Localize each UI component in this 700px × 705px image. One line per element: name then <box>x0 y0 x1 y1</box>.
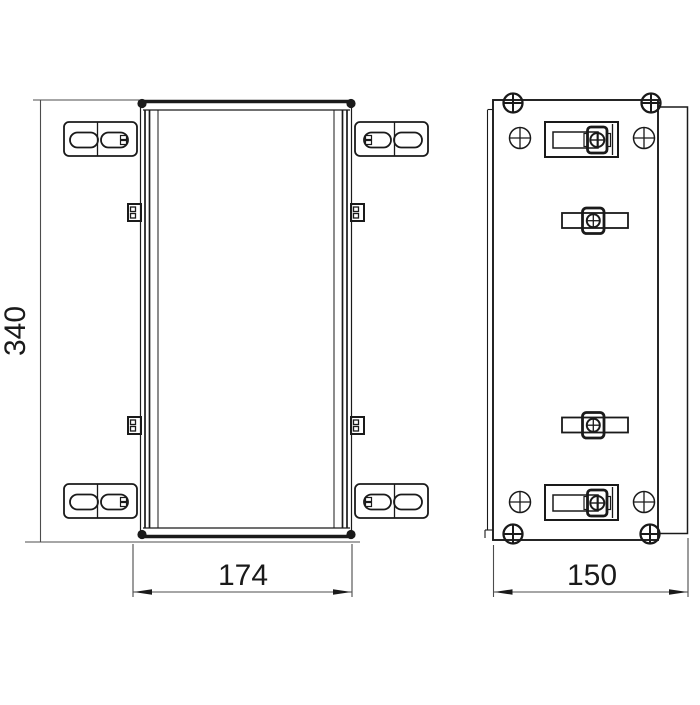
wall-bracket-bottom-right <box>355 484 428 518</box>
screw-hole-top-right <box>634 128 655 149</box>
edge-screw-bottom-left <box>504 525 523 544</box>
arrowhead-left <box>134 589 153 594</box>
frame-top-bar <box>137 99 355 110</box>
retainer-clip-left-lower <box>128 417 141 434</box>
screw-hole-bottom-left <box>510 492 531 513</box>
front-view: 340 <box>0 99 428 597</box>
top-bar-end-cap-left <box>137 99 146 108</box>
dimension-height-label: 340 <box>0 306 32 356</box>
clamp-bar-lower <box>562 413 628 439</box>
edge-screw-top-left <box>504 94 523 113</box>
wall-bracket-top-left <box>64 122 137 156</box>
slot-hole <box>394 495 422 510</box>
dimension-width-label: 174 <box>218 559 268 592</box>
frame-right-wall <box>334 104 352 536</box>
clamp-screw <box>587 214 600 227</box>
clamp-screw <box>587 419 600 432</box>
side-view: 150 <box>485 94 688 598</box>
dimension-width: 174 <box>133 544 352 597</box>
slot-hole <box>70 133 98 148</box>
wall-bracket-bottom-left <box>64 484 137 518</box>
retainer-clip-left-upper <box>128 204 141 221</box>
installation-frame-drawing: 340 <box>0 0 700 700</box>
arrowhead-left <box>494 589 513 594</box>
dimension-height: 340 <box>0 100 360 542</box>
arrowhead-right <box>333 589 352 594</box>
fastening-bracket-top <box>545 122 618 157</box>
side-left-fold <box>485 110 493 539</box>
dimension-depth: 150 <box>494 538 689 597</box>
frame-bottom-bar <box>137 528 355 539</box>
arrowhead-right <box>669 589 688 594</box>
screw-hole-top-left <box>510 128 531 149</box>
dimension-depth-label: 150 <box>567 559 617 592</box>
edge-screw-bottom-right <box>641 525 660 544</box>
screw-hole-bottom-right <box>634 492 655 513</box>
wall-bracket-top-right <box>355 122 428 156</box>
retainer-clip-right-upper <box>351 204 364 221</box>
side-right-flange <box>658 107 688 534</box>
edge-screw-top-right <box>642 94 661 113</box>
bracket-screw <box>590 496 604 510</box>
retainer-clip-right-lower <box>351 417 364 434</box>
slot-hole <box>70 495 98 510</box>
technical-drawing-canvas: 340 <box>0 0 700 700</box>
side-plate <box>493 100 658 540</box>
slot-hole <box>394 133 422 148</box>
clamp-bar-upper <box>562 208 628 234</box>
bracket-screw <box>590 133 604 147</box>
fastening-bracket-bottom <box>545 485 618 520</box>
bottom-bar-end-cap-left <box>137 530 146 539</box>
frame-left-wall <box>141 104 159 536</box>
